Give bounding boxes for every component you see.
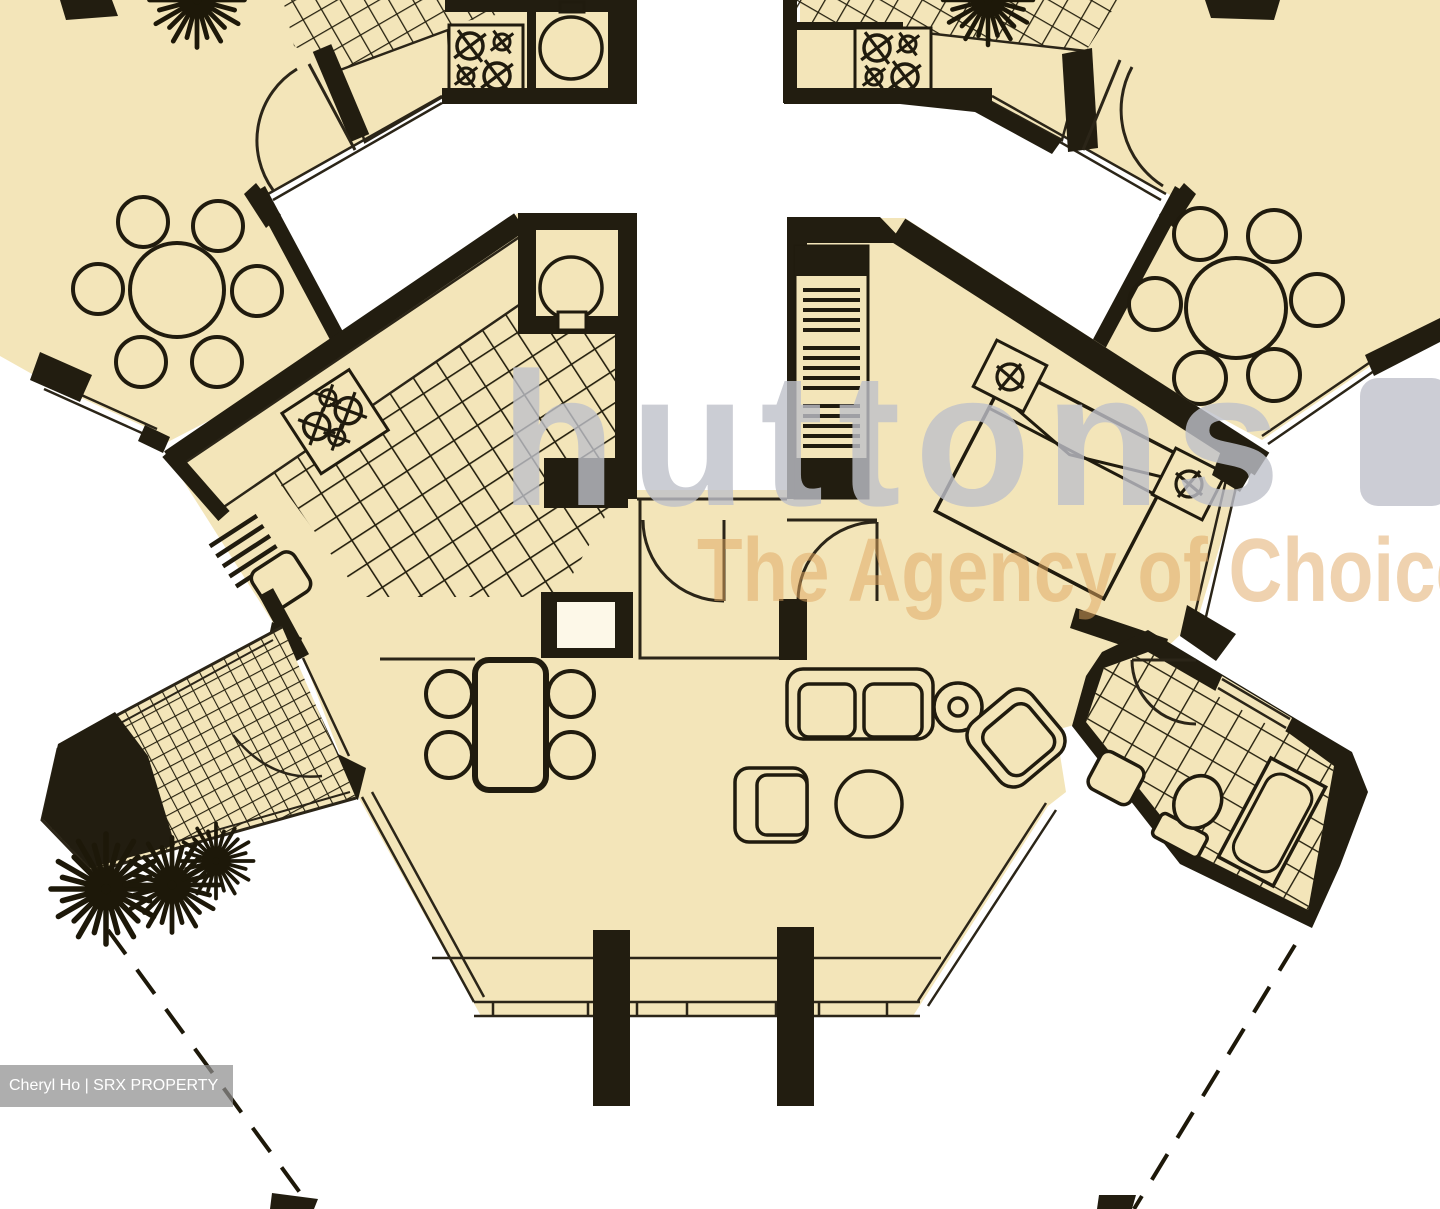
svg-text:huttons: huttons — [500, 334, 1294, 546]
svg-text:The Agency of Choice: The Agency of Choice — [697, 521, 1440, 621]
